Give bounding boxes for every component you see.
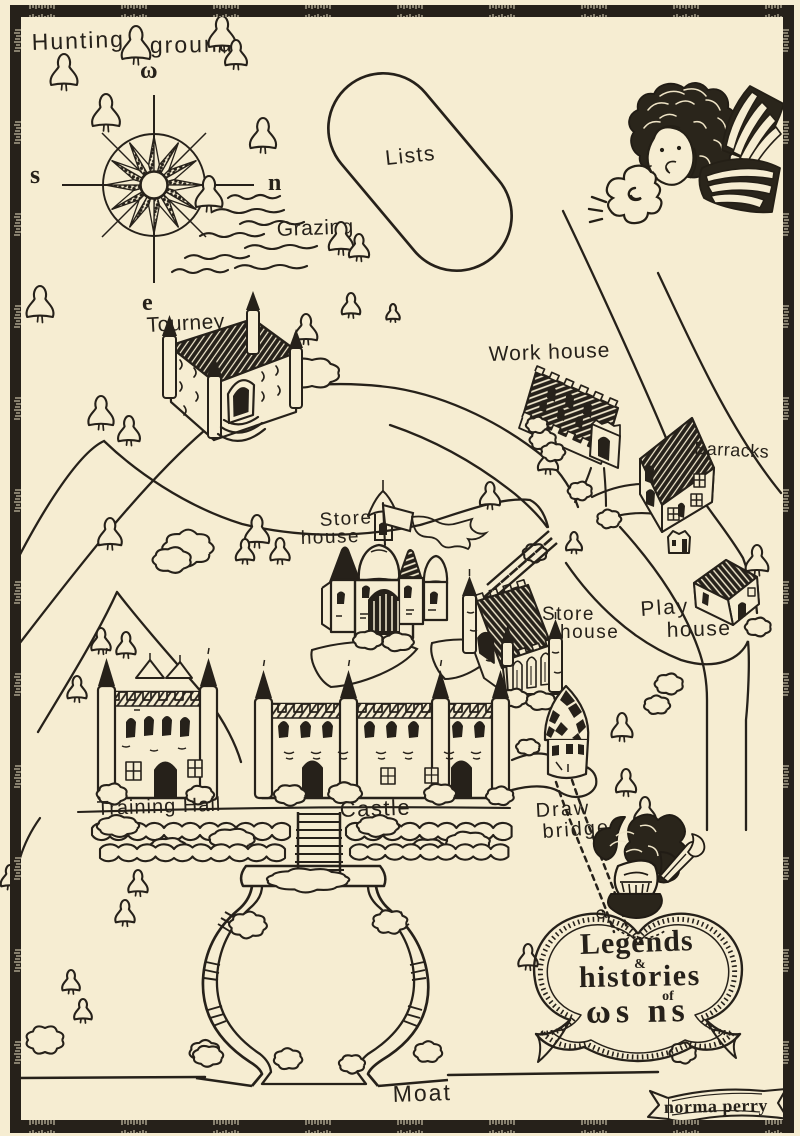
- svg-text:norma perry: norma perry: [664, 1095, 768, 1117]
- svg-text:Legends: Legends: [579, 924, 694, 961]
- svg-text:ω: ω: [140, 58, 158, 84]
- svg-text:Play: Play: [640, 595, 690, 621]
- svg-text:Work house: Work house: [488, 339, 610, 366]
- svg-text:house: house: [300, 526, 360, 549]
- svg-text:house: house: [666, 617, 731, 642]
- svg-text:Barracks: Barracks: [694, 438, 770, 462]
- svg-text:histories: histories: [579, 959, 701, 994]
- svg-text:Tourney: Tourney: [146, 310, 225, 337]
- svg-text:s: s: [30, 160, 41, 189]
- svg-text:e: e: [142, 290, 153, 316]
- svg-text:ωs ns: ωs ns: [586, 992, 690, 1031]
- svg-text:Moat: Moat: [392, 1079, 452, 1107]
- svg-text:house: house: [560, 622, 619, 643]
- svg-text:Hunting: Hunting: [31, 26, 125, 55]
- svg-text:n: n: [268, 170, 282, 196]
